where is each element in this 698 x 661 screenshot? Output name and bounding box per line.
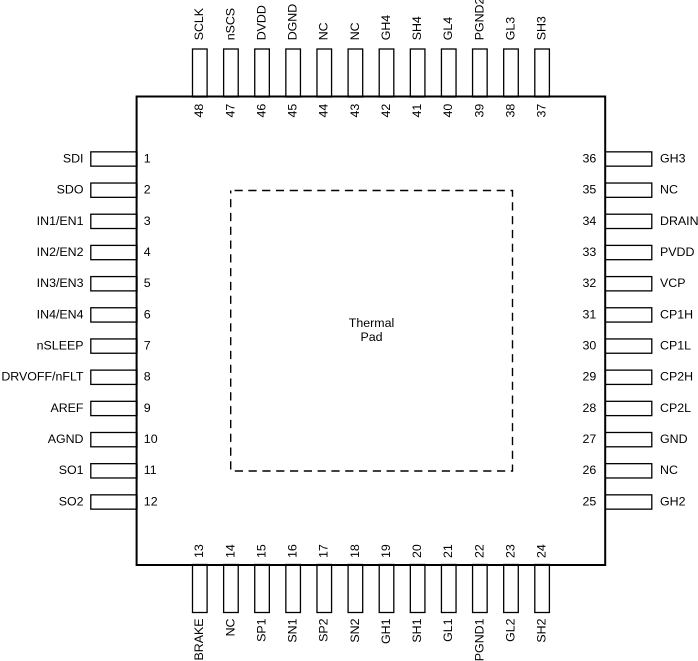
svg-text:24: 24 [535,544,549,558]
svg-text:39: 39 [472,104,486,118]
svg-text:NC: NC [660,463,678,477]
svg-text:18: 18 [348,544,362,558]
svg-text:10: 10 [144,432,158,446]
svg-text:9: 9 [144,401,151,415]
svg-text:SP2: SP2 [317,618,331,642]
svg-text:SH1: SH1 [410,618,424,642]
svg-text:CP1H: CP1H [660,307,693,321]
svg-text:nSLEEP: nSLEEP [37,338,84,352]
svg-text:PGND1: PGND1 [472,618,486,661]
svg-text:CP1L: CP1L [660,338,691,352]
svg-text:NC: NC [317,22,331,40]
svg-text:41: 41 [410,104,424,118]
svg-text:SDO: SDO [57,183,84,197]
svg-text:GL3: GL3 [503,17,517,41]
svg-text:14: 14 [223,544,237,558]
svg-text:35: 35 [583,183,597,197]
svg-text:GL1: GL1 [441,618,455,642]
svg-text:43: 43 [348,104,362,118]
svg-text:GH2: GH2 [660,494,686,508]
svg-text:DGND: DGND [286,4,300,41]
svg-text:27: 27 [583,432,597,446]
svg-text:47: 47 [223,104,237,118]
svg-text:PVDD: PVDD [660,245,694,259]
svg-text:Pad: Pad [360,330,382,344]
svg-text:7: 7 [144,338,151,352]
svg-text:23: 23 [503,544,517,558]
svg-text:6: 6 [144,307,151,321]
svg-text:42: 42 [379,104,393,118]
svg-text:11: 11 [144,463,157,477]
svg-text:32: 32 [583,276,597,290]
svg-text:45: 45 [286,104,300,118]
svg-text:GL4: GL4 [441,17,455,41]
svg-text:SO2: SO2 [59,494,84,508]
svg-text:28: 28 [583,401,597,415]
svg-text:IN1/EN1: IN1/EN1 [37,214,84,228]
svg-text:21: 21 [441,544,455,558]
svg-text:GH1: GH1 [379,618,393,644]
svg-text:CP2L: CP2L [660,401,691,415]
svg-text:SN1: SN1 [286,618,300,642]
svg-text:SH3: SH3 [535,16,549,40]
svg-text:5: 5 [144,276,151,290]
svg-text:PGND2: PGND2 [472,0,486,40]
svg-text:BRAKE: BRAKE [192,619,206,661]
svg-text:Thermal: Thermal [349,316,394,330]
svg-text:16: 16 [286,544,300,558]
svg-text:13: 13 [192,544,206,558]
svg-text:SO1: SO1 [59,463,84,477]
svg-text:SH4: SH4 [410,16,424,40]
svg-text:DRAIN: DRAIN [660,214,698,228]
svg-text:GH4: GH4 [379,15,393,41]
svg-text:46: 46 [254,104,268,118]
svg-text:8: 8 [144,370,151,384]
svg-text:nSCS: nSCS [223,8,237,40]
svg-text:2: 2 [144,183,151,197]
svg-text:AREF: AREF [50,401,83,415]
svg-text:CP2H: CP2H [660,370,693,384]
svg-text:25: 25 [583,494,597,508]
svg-text:22: 22 [472,544,486,558]
svg-text:SN2: SN2 [348,618,362,642]
svg-text:AGND: AGND [48,432,84,446]
svg-text:19: 19 [379,544,393,558]
svg-text:GL2: GL2 [503,618,517,642]
svg-text:12: 12 [144,494,158,508]
svg-text:SCLK: SCLK [192,7,206,40]
svg-text:48: 48 [192,104,206,118]
svg-text:17: 17 [317,544,331,558]
svg-text:NC: NC [223,618,237,636]
svg-text:37: 37 [535,104,549,118]
svg-text:38: 38 [503,104,517,118]
svg-text:VCP: VCP [660,276,685,290]
svg-text:DRVOFF/nFLT: DRVOFF/nFLT [1,370,84,384]
svg-text:NC: NC [348,22,362,40]
svg-text:SH2: SH2 [535,618,549,642]
svg-text:SDI: SDI [63,151,84,165]
svg-text:30: 30 [583,338,597,352]
svg-text:NC: NC [660,183,678,197]
svg-text:4: 4 [144,245,151,259]
svg-text:GH3: GH3 [660,151,686,165]
svg-text:IN2/EN2: IN2/EN2 [37,245,84,259]
svg-text:36: 36 [583,151,597,165]
svg-text:20: 20 [410,544,424,558]
svg-text:DVDD: DVDD [254,5,268,40]
svg-text:GND: GND [660,432,688,446]
svg-text:34: 34 [583,214,597,228]
svg-text:29: 29 [583,370,597,384]
svg-text:31: 31 [583,307,597,321]
svg-text:IN3/EN3: IN3/EN3 [37,276,84,290]
svg-text:IN4/EN4: IN4/EN4 [37,307,84,321]
svg-text:44: 44 [317,104,331,118]
svg-text:40: 40 [441,104,455,118]
svg-text:15: 15 [254,544,268,558]
svg-text:1: 1 [144,151,151,165]
svg-text:33: 33 [583,245,597,259]
svg-text:26: 26 [583,463,597,477]
svg-text:3: 3 [144,214,151,228]
svg-text:SP1: SP1 [254,618,268,642]
